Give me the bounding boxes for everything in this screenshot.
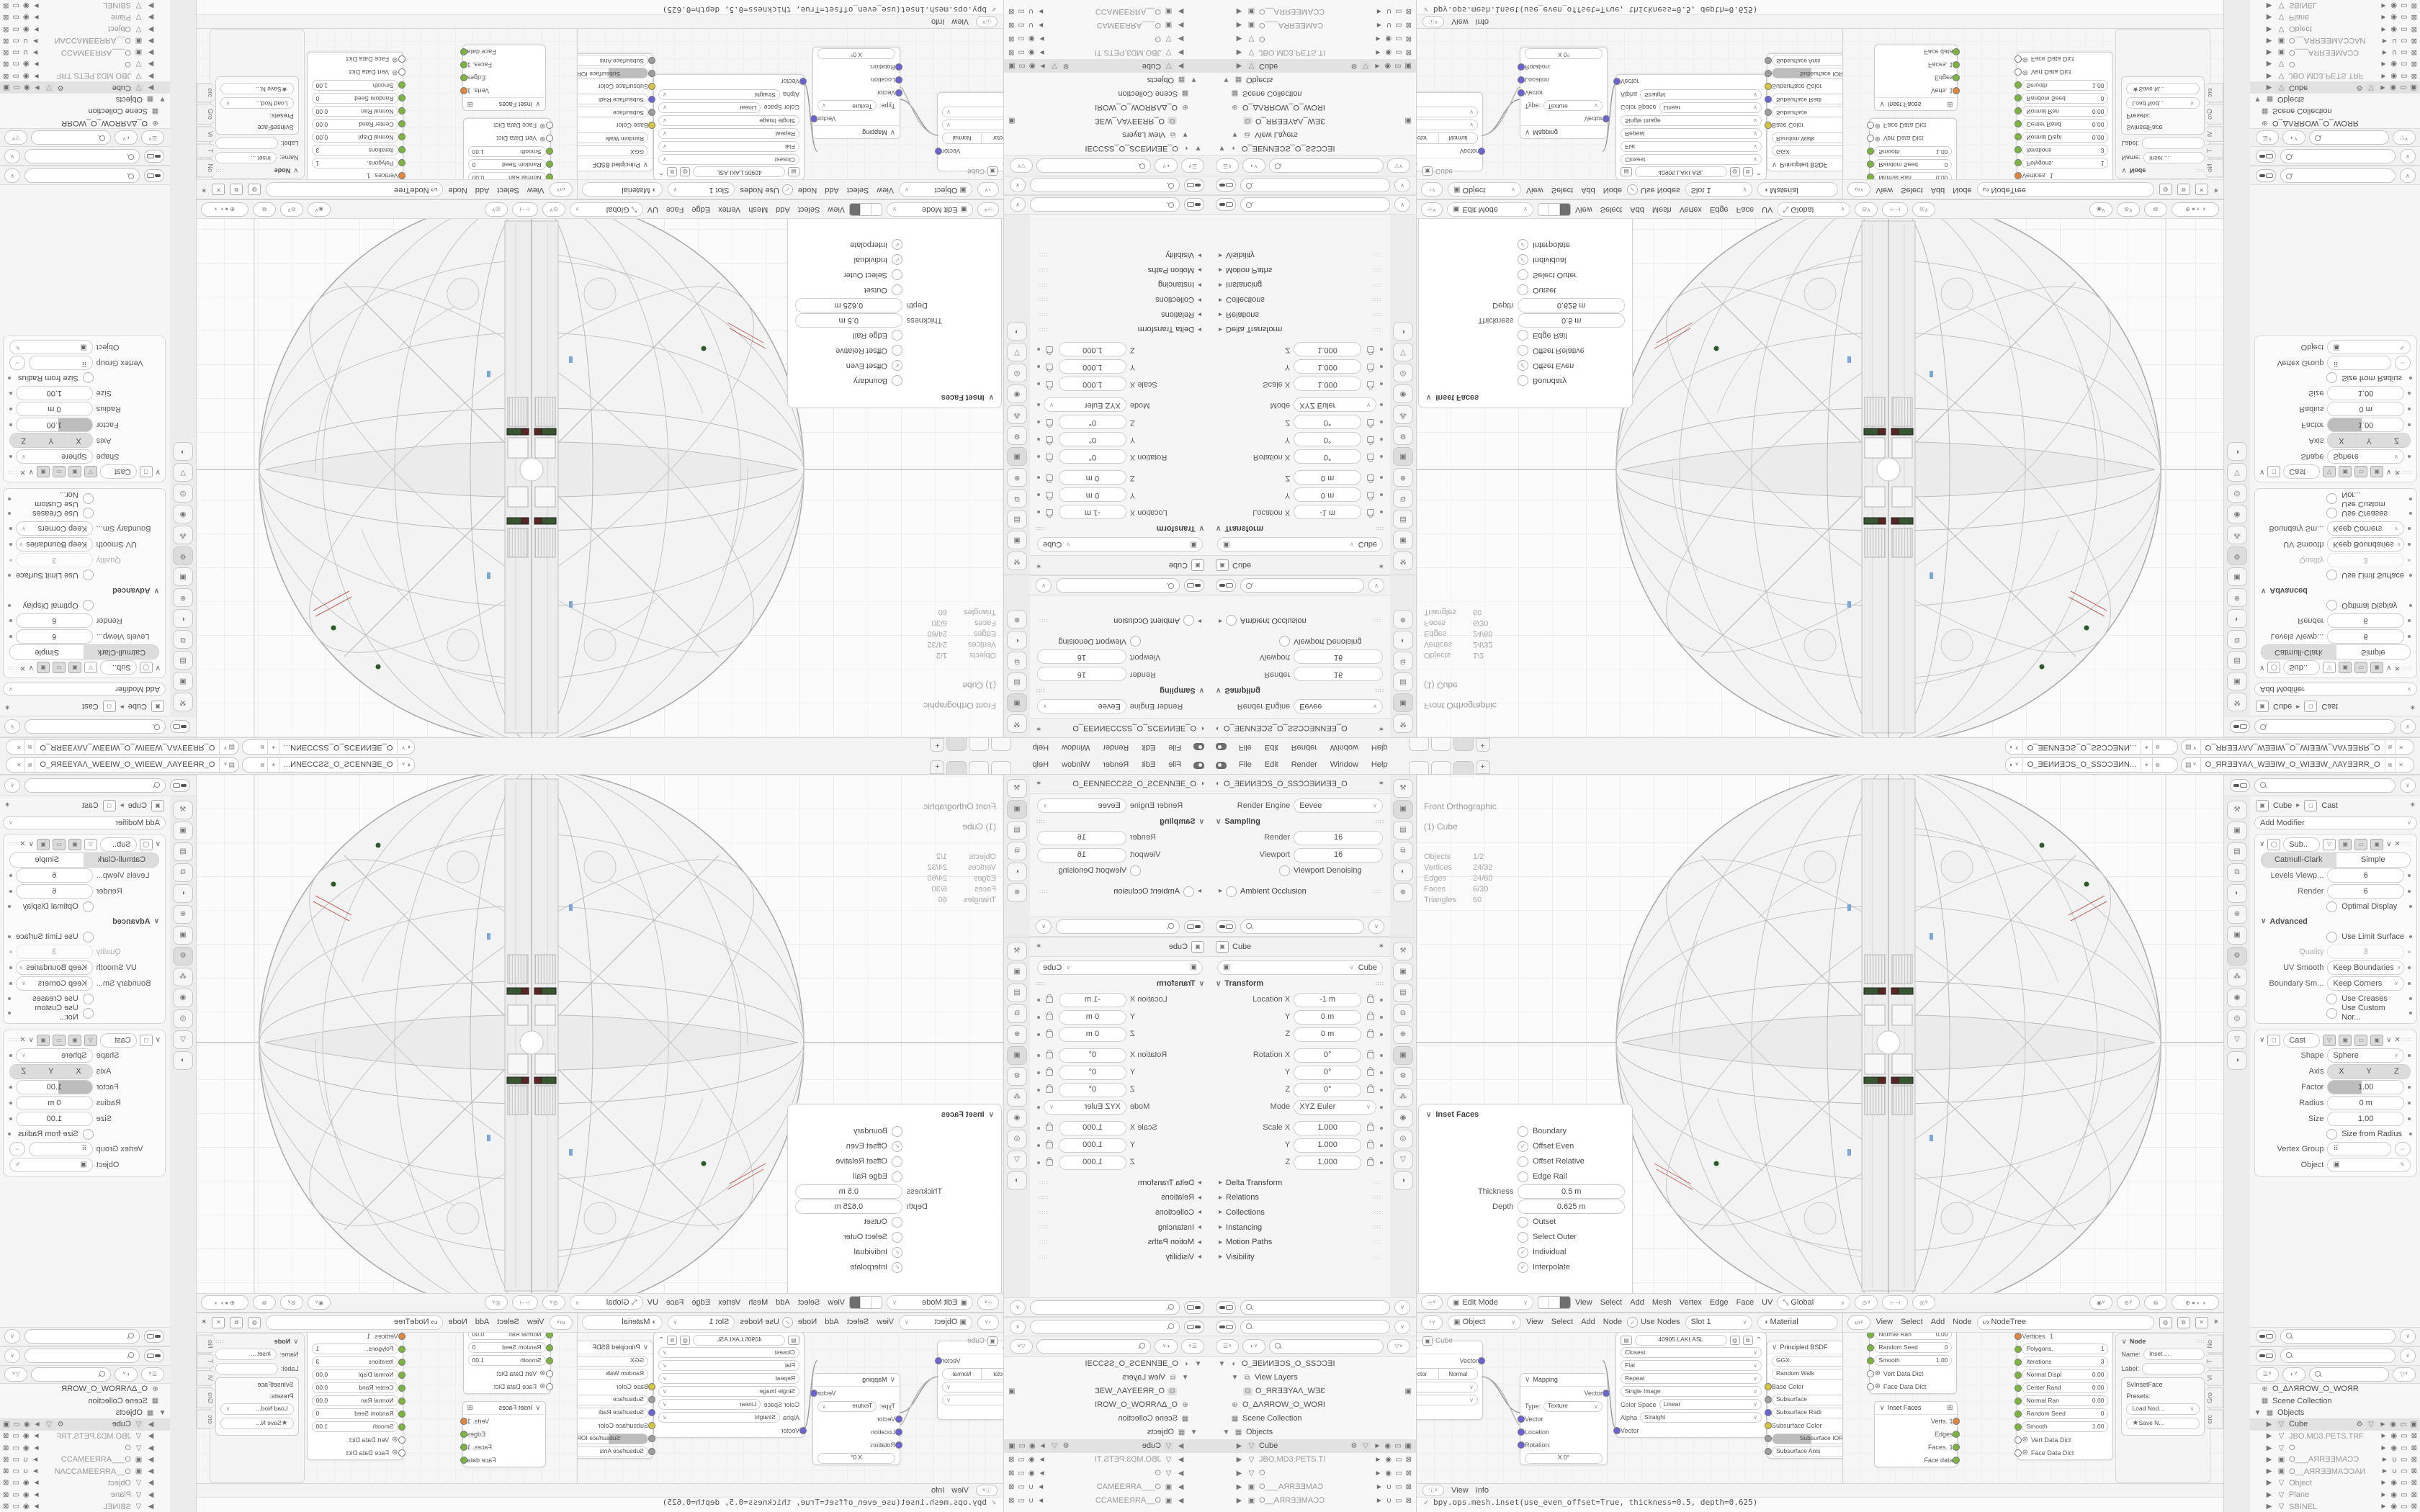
- output-tab-icon[interactable]: ▤: [1007, 672, 1027, 691]
- display-mode-icon[interactable]: ☰∨: [1216, 1339, 1239, 1354]
- chevron-down-icon[interactable]: ∨: [1394, 1320, 1410, 1334]
- viewport-toggle-icon[interactable]: ▭: [53, 466, 66, 477]
- physics-tab-icon[interactable]: ◉: [2227, 989, 2247, 1007]
- outliner-row-camera[interactable]: ▶▣O__AЯRƎƎMAƆƆ►∪▭⊠: [1210, 4, 1416, 18]
- info-menu-info[interactable]: Info: [931, 1486, 944, 1495]
- render-samples-field[interactable]: 16: [1037, 667, 1126, 681]
- animate-dot[interactable]: [1380, 403, 1383, 406]
- section-instancing[interactable]: Instancing: [1226, 280, 1262, 289]
- info-menu-info[interactable]: Info: [1476, 17, 1489, 27]
- use-creases-checkbox[interactable]: [83, 508, 94, 519]
- node-name-field[interactable]: Inset ...: [2143, 1349, 2205, 1360]
- animate-dot[interactable]: [1037, 999, 1040, 1002]
- axis-y-button[interactable]: Y: [37, 434, 64, 448]
- workspace-tab[interactable]: [991, 738, 1011, 751]
- menu-help[interactable]: Help: [1027, 760, 1054, 770]
- output-tab-icon[interactable]: ▤: [1393, 984, 1413, 1002]
- shader-editor-canvas[interactable]: ∨Vector Transform Vector PointVectorNorm…: [1417, 1332, 1842, 1483]
- catmull-clark-button[interactable]: Catmull-Clark: [2262, 646, 2336, 660]
- levels-viewport-field[interactable]: 6: [16, 629, 93, 644]
- viewport-menu-uv[interactable]: UV: [1762, 1298, 1773, 1308]
- pin-icon[interactable]: ✶: [2410, 702, 2416, 711]
- search-input[interactable]: [24, 1349, 140, 1363]
- info-log-row[interactable]: ✓ bpy.ops.mesh.inset(use_even_offset=Tru…: [197, 4, 1003, 14]
- viewport-samples-field[interactable]: 16: [1294, 649, 1383, 664]
- scale-y-field[interactable]: 1.000: [1059, 359, 1126, 374]
- workspace-tab[interactable]: [969, 761, 989, 774]
- chevron-down-icon[interactable]: ∨: [1199, 818, 1204, 827]
- levels-render-field[interactable]: 6: [2327, 884, 2404, 899]
- inset-params-node[interactable]: Normal Ran0.00 Random Seed0 Smooth1.00 ⊛…: [1869, 118, 1957, 184]
- viewport-menu-mesh[interactable]: Mesh: [748, 1298, 768, 1308]
- pin-icon[interactable]: ✶: [1379, 942, 1384, 951]
- object-tab-icon[interactable]: ▣: [2227, 926, 2247, 945]
- axis-y-button[interactable]: Y: [2356, 434, 2383, 448]
- vector-output-socket[interactable]: [935, 148, 942, 155]
- animate-dot[interactable]: [1380, 455, 1383, 458]
- outliner-row-scene-collection[interactable]: ▦Scene Collection: [0, 105, 170, 117]
- modifiers-tab-icon[interactable]: ⚙: [2227, 947, 2247, 966]
- search-input[interactable]: [1030, 1300, 1180, 1315]
- location-y-field[interactable]: 0 m: [1059, 487, 1126, 502]
- add-workspace-button[interactable]: +: [930, 760, 944, 774]
- section-instancing[interactable]: Instancing: [1158, 280, 1194, 289]
- node-tree-select[interactable]: ᔕNodeTree: [266, 182, 443, 197]
- lock-icon[interactable]: [1367, 1014, 1374, 1020]
- extras-chevron-icon[interactable]: ∨: [29, 467, 34, 476]
- material-tab-icon[interactable]: ◑: [1007, 322, 1027, 341]
- view-layer-tab-icon[interactable]: ⧉: [1393, 652, 1413, 670]
- levels-render-field[interactable]: 6: [16, 613, 93, 628]
- chevron-down-icon[interactable]: ∨: [4, 149, 20, 163]
- info-menu-info[interactable]: Info: [1476, 1486, 1489, 1495]
- viewport-toggle-icon[interactable]: ▭: [53, 839, 66, 850]
- filter-toggle-icon[interactable]: [2256, 1330, 2276, 1343]
- workspace-tab[interactable]: [1409, 761, 1429, 774]
- chevron-right-icon[interactable]: ▸: [1198, 616, 1201, 625]
- outliner-row-plane[interactable]: ▶▽Plane►◉▭⊠: [0, 1489, 170, 1500]
- editor-type-icon[interactable]: ᔕ∨: [550, 1315, 573, 1330]
- sverchok-node-editor[interactable]: ᔕ∨ View Select Add Node ᔕNodeTree ◍ ⧉ ✕ …: [197, 1313, 577, 1483]
- blender-logo-icon[interactable]: [1193, 762, 1204, 769]
- viewport-menu-vertex[interactable]: Vertex: [718, 1298, 740, 1308]
- chevron-down-icon[interactable]: ∨: [4, 719, 20, 734]
- menu-edit[interactable]: Edit: [1137, 742, 1160, 752]
- tool-tab-icon[interactable]: ⚒: [1393, 779, 1413, 798]
- rotation-z-field[interactable]: 0°: [1059, 415, 1126, 429]
- object-tab-icon[interactable]: ▣: [1007, 1046, 1027, 1065]
- use-nodes-checkbox[interactable]: ✓: [782, 1317, 793, 1328]
- lock-icon[interactable]: [1046, 1159, 1053, 1166]
- use-nodes-checkbox[interactable]: ✓: [1627, 184, 1638, 195]
- chevron-down-icon[interactable]: ∨: [4, 778, 20, 793]
- outliner-row-plane[interactable]: ▶▽Plane►◉▭⊠: [0, 11, 170, 22]
- editor-type-icon[interactable]: ◔∨: [977, 1315, 999, 1330]
- tool-tab-icon[interactable]: ⚒: [1007, 779, 1027, 798]
- node-name-field[interactable]: Inset ...: [2143, 152, 2205, 163]
- node-menu-select[interactable]: Select: [497, 185, 519, 194]
- vector-transform-node[interactable]: ∨Vector Transform Vector PointVectorNorm…: [1417, 1341, 1483, 1421]
- outliner-row-world[interactable]: ⊕O_ΔΛЯROW_O_WOЯI: [1210, 1398, 1416, 1412]
- viewport-toggle-icon[interactable]: ▭: [53, 662, 66, 673]
- section-relations[interactable]: Relations: [1161, 310, 1194, 319]
- levels-viewport-field[interactable]: 6: [2327, 629, 2404, 644]
- thickness-field[interactable]: 0.5 m: [1518, 313, 1625, 328]
- rotation-x-field[interactable]: 0°: [1294, 449, 1361, 464]
- mapping-node[interactable]: ∨Mapping Vector Type:Texture∨ Vector Loc…: [812, 1373, 900, 1466]
- fake-user-icon[interactable]: ◍: [2159, 1317, 2172, 1328]
- lock-icon[interactable]: [1367, 419, 1374, 426]
- outliner-row-object[interactable]: ▶▽JBO.MD3.PETS.TI►◉▭⊠: [1210, 45, 1416, 59]
- copy-icon[interactable]: ⧉: [230, 1317, 243, 1328]
- object-tab-icon[interactable]: ▣: [1393, 1046, 1413, 1065]
- material-select[interactable]: ◑Material: [1757, 1315, 1838, 1330]
- location-z-field[interactable]: 0 m: [1294, 1027, 1361, 1042]
- chevron-down-icon[interactable]: ∨: [1199, 980, 1204, 989]
- pin-icon[interactable]: ✶: [1379, 724, 1384, 732]
- node-menu-view[interactable]: View: [527, 1318, 544, 1327]
- info-log-row[interactable]: ✓ bpy.ops.mesh.inset(use_even_offset=Tru…: [197, 1498, 1003, 1508]
- viewport-denoising-checkbox[interactable]: [1279, 865, 1290, 876]
- output-tab-icon[interactable]: ▤: [173, 651, 193, 670]
- outliner-row-world[interactable]: ⊕O_ΔΛЯROW_O_WOЯR: [2250, 1384, 2420, 1395]
- render-toggle-icon[interactable]: ▣: [37, 839, 50, 850]
- scale-z-field[interactable]: 1.000: [1294, 342, 1361, 356]
- animate-dot[interactable]: [1037, 403, 1040, 406]
- object-field[interactable]: ▣✎: [9, 1158, 93, 1172]
- node-menu-node[interactable]: Node: [1953, 1318, 1971, 1327]
- object-name-field[interactable]: ▣∨Cube: [1037, 537, 1203, 552]
- optimal-display-checkbox[interactable]: [83, 901, 94, 912]
- lock-icon[interactable]: [1367, 1125, 1374, 1131]
- view-layer-tab-icon[interactable]: ⧉: [2227, 863, 2247, 882]
- outliner-row-world[interactable]: ⊕O_ΔΛЯROW_O_WOЯR: [2250, 117, 2420, 128]
- shader-menu-node[interactable]: Node: [798, 1318, 817, 1327]
- outliner-row-scene-collection[interactable]: ▦Scene Collection: [2250, 105, 2420, 117]
- search-input[interactable]: [24, 719, 166, 734]
- search-input[interactable]: [1030, 179, 1180, 193]
- outliner-row-scene-collection[interactable]: ▦Scene Collection: [1004, 86, 1210, 100]
- realtime-toggle-icon[interactable]: ▣: [2339, 1035, 2352, 1046]
- scene-selector[interactable]: ◐∨ O_ƎEИИƎƆS_O_SSƆƆƎИN... ✶ ⧉: [242, 757, 415, 773]
- viewport-denoising-checkbox[interactable]: [1130, 865, 1141, 876]
- interpolate-checkbox[interactable]: ✓: [1518, 239, 1528, 250]
- use-nodes-checkbox[interactable]: ✓: [1627, 1317, 1638, 1328]
- animate-dot[interactable]: [1037, 510, 1040, 513]
- viewport-toggle-icon[interactable]: ▭: [2354, 1035, 2367, 1046]
- outliner-search-input[interactable]: [2309, 130, 2389, 145]
- world-tab-icon[interactable]: ⊕: [1007, 468, 1027, 487]
- outliner-row-object[interactable]: ▶▽JBO.MD3.PETS.TRF►◉▭⊠: [0, 70, 170, 81]
- chevron-down-icon[interactable]: ∨: [2259, 467, 2264, 476]
- mode-select[interactable]: ▣Edit Mode∨: [1447, 202, 1533, 217]
- image-texture-node[interactable]: ▤40905.LAKI.ASL◍⧉⌃ Closest∨ Flat∨ Repeat…: [653, 74, 805, 180]
- editor-type-icon[interactable]: ⓘ∨: [1422, 1485, 1444, 1496]
- ambient-occlusion-checkbox[interactable]: [1226, 615, 1237, 626]
- outliner-row-object[interactable]: ▶▽O►◉▭⊠: [2250, 58, 2420, 70]
- lock-icon[interactable]: [1046, 419, 1053, 426]
- outliner-row-objects[interactable]: ▼▦Objects: [1004, 73, 1210, 86]
- close-icon[interactable]: ✕: [19, 1036, 25, 1045]
- animate-dot[interactable]: [1037, 1106, 1040, 1109]
- scale-x-field[interactable]: 1.000: [1059, 1121, 1126, 1135]
- use-creases-checkbox[interactable]: [83, 994, 94, 1004]
- search-input[interactable]: [2254, 778, 2396, 793]
- outliner-row-camera[interactable]: ▶▣O__AЯRƎƎMAƆƆAИ►∪▭⊠: [2250, 35, 2420, 46]
- rotation-mode-select[interactable]: XYZ Euler∨: [1294, 1100, 1376, 1115]
- constraints-tab-icon[interactable]: ◎: [1393, 364, 1413, 382]
- add-workspace-button[interactable]: +: [1476, 738, 1490, 752]
- shader-menu-view[interactable]: View: [1526, 1318, 1543, 1327]
- material-select[interactable]: ◑Material: [582, 182, 663, 197]
- select-mode-buttons[interactable]: [1538, 203, 1571, 216]
- material-slot-select[interactable]: Slot 1∨: [668, 1315, 735, 1330]
- section-relations[interactable]: Relations: [1161, 1193, 1194, 1202]
- render-samples-field[interactable]: 16: [1294, 667, 1383, 681]
- sidebar-tab[interactable]: No: [2205, 159, 2223, 178]
- constraints-tab-icon[interactable]: ◎: [1007, 1130, 1027, 1148]
- data-tab-icon[interactable]: ▽: [1393, 343, 1413, 361]
- vertex-group-field[interactable]: ⠿: [29, 356, 93, 370]
- proportional-editing-icon[interactable]: ◎∨: [1912, 1295, 1935, 1310]
- blender-logo-icon[interactable]: [1193, 744, 1204, 751]
- tool-tab-icon[interactable]: ⚒: [1393, 942, 1413, 960]
- shader-menu-add[interactable]: Add: [1581, 185, 1595, 194]
- chevron-down-icon[interactable]: ∨: [2400, 719, 2416, 734]
- close-icon[interactable]: ✕: [14, 740, 25, 754]
- filter-id-icon[interactable]: ◐∨: [2282, 130, 2305, 145]
- rotation-z-field[interactable]: 0°: [1059, 1083, 1126, 1097]
- transform-orientation-select[interactable]: ⤡Global∨: [570, 202, 643, 217]
- menu-window[interactable]: Window: [1057, 760, 1095, 770]
- close-icon[interactable]: ✕: [2195, 184, 2208, 195]
- animate-dot[interactable]: [1380, 420, 1383, 423]
- section-collections[interactable]: Collections: [1226, 294, 1265, 304]
- mode-select[interactable]: ▣Edit Mode∨: [887, 1295, 973, 1310]
- close-icon[interactable]: ✕: [212, 184, 225, 195]
- viewport-menu-uv[interactable]: UV: [647, 1298, 658, 1308]
- viewport-menu-add[interactable]: Add: [776, 204, 790, 214]
- chevron-down-icon[interactable]: ∨: [2259, 840, 2264, 849]
- axis-x-button[interactable]: X: [64, 1065, 91, 1079]
- modifier-name-field[interactable]: Sub..: [2283, 837, 2320, 852]
- lock-icon[interactable]: [1046, 509, 1053, 516]
- data-tab-icon[interactable]: ▽: [173, 463, 193, 482]
- viewport-3d[interactable]: Front Orthographic (1) Cube Objects1/2 V…: [197, 199, 1003, 737]
- shader-menu-select[interactable]: Select: [1551, 185, 1574, 194]
- viewport-menu-select[interactable]: Select: [798, 204, 820, 214]
- chevron-down-icon[interactable]: ∨: [1216, 818, 1221, 827]
- viewport-menu-face[interactable]: Face: [666, 1298, 684, 1308]
- render-toggle-icon[interactable]: ▣: [2370, 662, 2383, 673]
- snap-magnet-icon[interactable]: ⊢⊣: [512, 202, 538, 217]
- close-icon[interactable]: ✕: [19, 467, 25, 476]
- search-input[interactable]: [1240, 198, 1390, 212]
- world-tab-icon[interactable]: ⊕: [1007, 883, 1027, 902]
- uv-smooth-select[interactable]: Keep Boundaries∨: [16, 537, 93, 552]
- chevron-down-icon[interactable]: ∨: [4, 1329, 20, 1344]
- animate-dot[interactable]: [1037, 348, 1040, 351]
- size-field[interactable]: 1.00: [2327, 386, 2404, 400]
- editor-type-icon[interactable]: ◔∨: [1421, 182, 1443, 197]
- animate-dot[interactable]: [1380, 1016, 1383, 1019]
- chevron-down-icon[interactable]: ∨: [1368, 578, 1384, 593]
- tool-tab-icon[interactable]: ⚒: [2227, 801, 2247, 819]
- viewport-menu-face[interactable]: Face: [666, 204, 684, 214]
- render-toggle-icon[interactable]: ▣: [37, 1035, 50, 1046]
- search-input[interactable]: [24, 168, 140, 183]
- sidebar-tab[interactable]: Vi: [2205, 126, 2223, 142]
- animate-dot[interactable]: [1380, 382, 1383, 385]
- edit-mode-toggle-icon[interactable]: ▽: [84, 466, 97, 477]
- search-input[interactable]: [2280, 1349, 2396, 1363]
- outliner-row-viewlayer[interactable]: ⧉O_ЯRƎƎYAΛ_WƎƐ▣: [1210, 114, 1416, 127]
- radius-field[interactable]: 0 m: [2327, 1096, 2404, 1110]
- lock-icon[interactable]: [1046, 1014, 1053, 1020]
- tool-tab-icon[interactable]: ⚒: [1007, 552, 1027, 570]
- shading-context-select[interactable]: ▣Object∨: [1448, 1315, 1521, 1330]
- outliner-row-object[interactable]: ▶▽Object►◉▭⊠: [0, 1477, 170, 1489]
- render-engine-select[interactable]: Eevee∨: [1037, 699, 1126, 714]
- sidebar-tab[interactable]: Vi: [2205, 1370, 2223, 1386]
- realtime-toggle-icon[interactable]: ▣: [2339, 839, 2352, 850]
- lock-icon[interactable]: [1046, 436, 1053, 443]
- outliner-row-scene-collection[interactable]: ▦Scene Collection: [1210, 86, 1416, 100]
- menu-edit[interactable]: Edit: [1260, 742, 1283, 752]
- lock-icon[interactable]: [1046, 1031, 1053, 1038]
- pin-icon[interactable]: ✶: [4, 801, 10, 810]
- menu-file[interactable]: File: [1163, 742, 1186, 752]
- vector-output-socket[interactable]: [1603, 1390, 1610, 1397]
- animate-dot[interactable]: [1380, 1071, 1383, 1074]
- viewport-menu-vertex[interactable]: Vertex: [1680, 1298, 1702, 1308]
- save-node-preset-button[interactable]: ★Save N...: [2126, 83, 2200, 94]
- filter-id-icon[interactable]: ◐∨: [115, 1367, 138, 1382]
- particles-tab-icon[interactable]: ⁂: [1007, 405, 1027, 424]
- object-field[interactable]: ▣✎: [2327, 340, 2411, 354]
- scale-z-field[interactable]: 1.000: [1059, 342, 1126, 356]
- shader-menu-view[interactable]: View: [877, 1318, 894, 1327]
- chevron-down-icon[interactable]: ∨: [989, 1111, 994, 1120]
- lock-icon[interactable]: [1046, 474, 1053, 481]
- outliner-row-cube[interactable]: ▶▽Cube⚙▽►◉▭▣: [1210, 1439, 1416, 1453]
- pin-icon[interactable]: ✶: [1036, 942, 1041, 951]
- animate-dot[interactable]: [1037, 365, 1040, 368]
- axis-z-button[interactable]: Z: [2383, 1065, 2410, 1079]
- location-z-field[interactable]: 0 m: [1294, 470, 1361, 485]
- xray-toggle-icon[interactable]: ⧉: [253, 1295, 276, 1310]
- tool-tab-icon[interactable]: ⚒: [173, 801, 193, 819]
- filter-id-icon[interactable]: ◐∨: [115, 130, 138, 145]
- sidebar-tab[interactable]: erc: [2205, 84, 2223, 103]
- output-tab-icon[interactable]: ▤: [1007, 510, 1027, 528]
- menu-edit[interactable]: Edit: [1137, 760, 1160, 770]
- filter-toggle-icon[interactable]: [2230, 720, 2250, 733]
- material-slot-select[interactable]: Slot 1∨: [1685, 1315, 1753, 1330]
- world-tab-icon[interactable]: ⊕: [1007, 1025, 1027, 1044]
- animate-dot[interactable]: [1037, 438, 1040, 441]
- scene-tab-icon[interactable]: ◐: [1007, 863, 1027, 881]
- animate-dot[interactable]: [1037, 455, 1040, 458]
- display-mode-icon[interactable]: ☰∨: [2256, 130, 2279, 145]
- node-tree-select[interactable]: ᔕNodeTree: [266, 1315, 443, 1330]
- view-layer-tab-icon[interactable]: ⧉: [1007, 489, 1027, 508]
- data-tab-icon[interactable]: ▽: [1007, 1151, 1027, 1169]
- filter-funnel-icon[interactable]: ▽∨: [2393, 1367, 2416, 1382]
- filter-toggle-icon[interactable]: [2256, 169, 2276, 182]
- outliner-row-viewlayer[interactable]: ⧉O_ЯRƎƎYAΛ_WƎƐ▣: [1004, 1385, 1210, 1398]
- physics-tab-icon[interactable]: ◉: [173, 989, 193, 1007]
- viewport-toggle-icon[interactable]: ▭: [2354, 466, 2367, 477]
- outliner-row-object[interactable]: ▶▽O►◉▭⊠: [0, 58, 170, 70]
- filter-funnel-icon[interactable]: ▽∨: [1387, 1339, 1410, 1354]
- animate-dot[interactable]: [1037, 1161, 1040, 1164]
- copy-icon[interactable]: ⧉: [2385, 740, 2396, 754]
- editor-type-icon[interactable]: ⊹∨: [977, 1295, 999, 1310]
- use-creases-checkbox[interactable]: [2326, 508, 2337, 519]
- node-tree-select[interactable]: ᔕNodeTree: [1977, 1315, 2154, 1330]
- add-modifier-button[interactable]: Add Modifier∨: [3, 816, 166, 829]
- particles-tab-icon[interactable]: ⁂: [1007, 1088, 1027, 1107]
- offset-relative-checkbox[interactable]: [892, 345, 902, 356]
- menu-render[interactable]: Render: [1098, 760, 1134, 770]
- use-limit-surface-checkbox[interactable]: [2326, 932, 2337, 942]
- close-icon[interactable]: ✕: [2394, 1036, 2400, 1045]
- outliner-search-input[interactable]: [31, 1367, 111, 1382]
- scale-x-field[interactable]: 1.000: [1059, 377, 1126, 391]
- ambient-occlusion-checkbox[interactable]: [1226, 886, 1237, 897]
- use-custom-normals-checkbox[interactable]: [2326, 494, 2337, 505]
- sverchok-editor-canvas[interactable]: Normal Ran0.00 Random Seed0 Smooth1.00 ⊛…: [197, 1332, 577, 1483]
- pin-icon[interactable]: ✶: [2141, 740, 2152, 754]
- lock-icon[interactable]: [1046, 996, 1053, 1003]
- world-tab-icon[interactable]: ⊕: [1393, 610, 1413, 629]
- chevron-down-icon[interactable]: ∨: [1216, 524, 1221, 533]
- filter-id-icon[interactable]: ◐∨: [2282, 1367, 2305, 1382]
- sidebar-tab[interactable]: Gro: [197, 1387, 215, 1408]
- animate-dot[interactable]: [1037, 1016, 1040, 1019]
- outliner-row-objects[interactable]: ▼▦Objects: [1004, 1426, 1210, 1439]
- render-samples-field[interactable]: 16: [1294, 831, 1383, 845]
- rotation-y-field[interactable]: 0°: [1059, 1066, 1126, 1080]
- vector-transform-node[interactable]: ∨Vector Transform Vector PointVectorNorm…: [1417, 92, 1483, 172]
- transform-orientation-select[interactable]: ⤡Global∨: [1777, 202, 1850, 217]
- viewport-menu-edge[interactable]: Edge: [691, 204, 710, 214]
- axis-z-button[interactable]: Z: [2383, 434, 2410, 448]
- breadcrumb-object[interactable]: Cube: [2273, 702, 2292, 711]
- edit-mode-toggle-icon[interactable]: ▽: [2323, 662, 2336, 673]
- view-layer-tab-icon[interactable]: ⧉: [1007, 652, 1027, 670]
- node-menu-node[interactable]: Node: [448, 1318, 467, 1327]
- section-visibility[interactable]: Visibility: [1226, 251, 1255, 260]
- render-tab-icon[interactable]: ▣: [1393, 531, 1413, 549]
- copy-icon[interactable]: ⧉: [230, 184, 243, 195]
- lock-icon[interactable]: [1046, 492, 1053, 498]
- material-tab-icon[interactable]: ◑: [2227, 1051, 2247, 1070]
- menu-render[interactable]: Render: [1286, 742, 1322, 752]
- outliner-row-cube[interactable]: ▶▽Cube⚙▽►◉▭▣: [1004, 1439, 1210, 1453]
- node-menu-view[interactable]: View: [527, 185, 544, 194]
- outliner-row-camera[interactable]: ▶▣O___AЯRƎƎMAƆ►∪▭⊠: [1004, 18, 1210, 32]
- filter-toggle-icon[interactable]: [144, 1349, 164, 1362]
- size-from-radius-checkbox[interactable]: [83, 1129, 94, 1140]
- data-tab-icon[interactable]: ▽: [2227, 463, 2247, 482]
- world-tab-icon[interactable]: ⊕: [1393, 468, 1413, 487]
- animate-dot[interactable]: [1380, 1161, 1383, 1164]
- material-select[interactable]: ◑Material: [582, 1315, 663, 1330]
- realtime-toggle-icon[interactable]: ▣: [68, 1035, 81, 1046]
- individual-checkbox[interactable]: ✓: [1518, 1247, 1528, 1258]
